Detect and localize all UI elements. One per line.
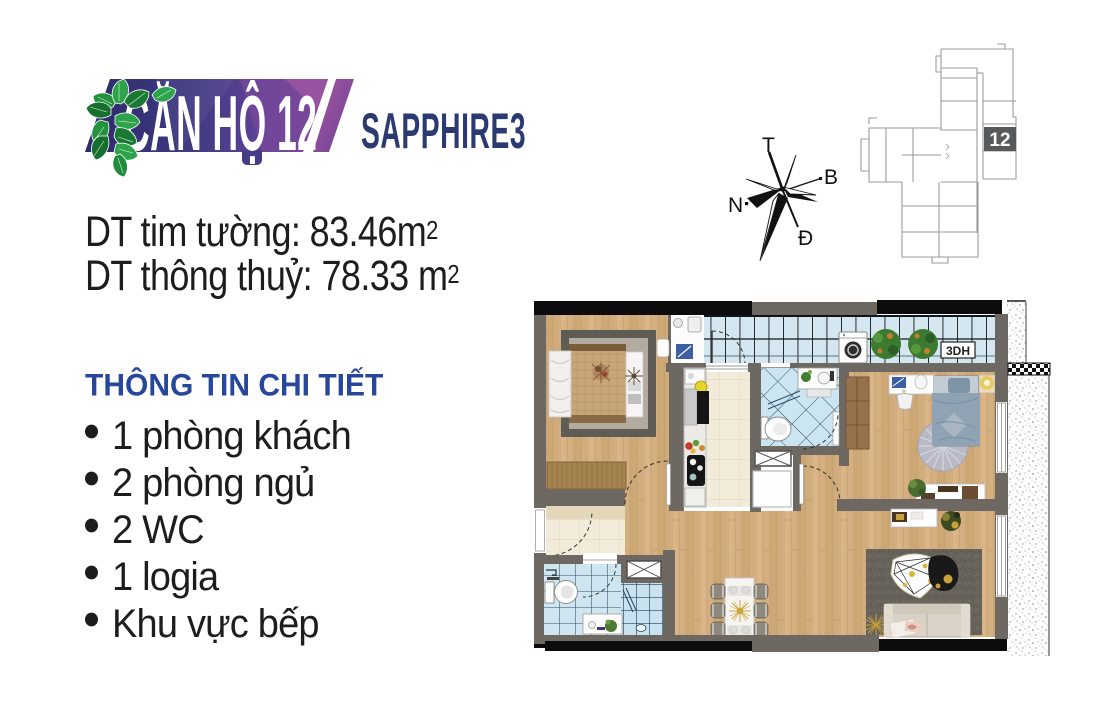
- svg-text:Đ: Đ: [798, 227, 813, 250]
- svg-text:B: B: [824, 166, 838, 189]
- svg-text:12: 12: [989, 130, 1010, 151]
- svg-text:3DH: 3DH: [946, 344, 970, 358]
- svg-text:T: T: [762, 134, 775, 157]
- svg-text:SAPPHIRE3: SAPPHIRE3: [361, 102, 526, 159]
- svg-text:CĂN HỘ 12: CĂN HỘ 12: [124, 79, 317, 167]
- svg-text:N: N: [728, 194, 743, 217]
